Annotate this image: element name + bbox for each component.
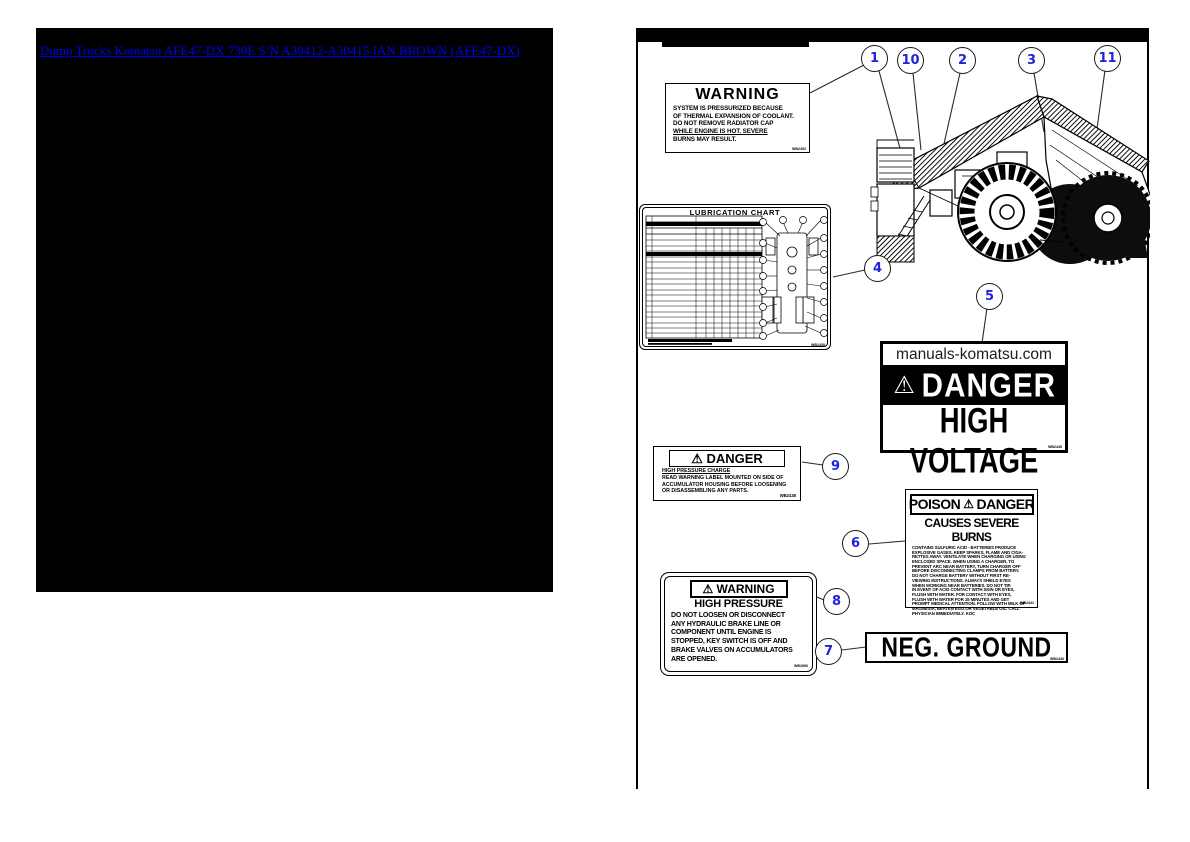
- high-pressure-body: DO NOT LOOSEN OR DISCONNECT ANY HYDRAULI…: [671, 612, 816, 664]
- label-part-code: WB2896: [794, 664, 808, 668]
- warning-radiator-label: WARNING SYSTEM IS PRESSURIZED BECAUSE OF…: [665, 83, 810, 153]
- page-canvas: { "colors": { "link_blue": "#0000EE", "c…: [0, 0, 1190, 842]
- warning-line: OF THERMAL EXPANSION OF COOLANT.: [673, 113, 809, 121]
- neg-ground-text: NEG. GROUND: [881, 631, 1051, 663]
- high-pressure-line: ANY HYDRAULIC BRAKE LINE OR: [671, 621, 816, 630]
- lubrication-chart-label: LUBRICATION CHART WB2430: [639, 204, 831, 350]
- poison-header-box: POISON ⚠ DANGER: [910, 494, 1034, 515]
- poison-subtitle: CAUSES SEVERE BURNS: [906, 516, 1037, 544]
- callout-10: 10: [897, 47, 924, 74]
- danger-word: DANGER: [977, 496, 1035, 513]
- warning-line: SYSTEM IS PRESSURIZED BECAUSE: [673, 105, 809, 113]
- lubrication-chart-title: LUBRICATION CHART: [640, 208, 830, 217]
- warning-high-pressure-label: ⚠ WARNING HIGH PRESSURE DO NOT LOOSEN OR…: [660, 572, 817, 676]
- warning-word: WARNING: [717, 582, 775, 596]
- poison-word: POISON: [909, 496, 960, 513]
- accumulator-line: READ WARNING LABEL MOUNTED ON SIDE OF: [662, 475, 800, 482]
- callout-3: 3: [1018, 47, 1045, 74]
- label-part-code: WB2430: [811, 343, 825, 347]
- callout-9: 9: [822, 453, 849, 480]
- danger-word: DANGER: [922, 367, 1056, 405]
- label-part-code: WB2441: [1020, 601, 1034, 605]
- high-pressure-subtitle: HIGH PRESSURE: [661, 598, 816, 610]
- poison-danger-label: POISON ⚠ DANGER CAUSES SEVERE BURNS CONT…: [905, 489, 1038, 608]
- callout-11: 11: [1094, 45, 1121, 72]
- warning-header-box: ⚠ WARNING: [690, 580, 788, 598]
- callout-2: 2: [949, 47, 976, 74]
- warning-triangle-icon: ⚠: [963, 496, 973, 513]
- warning-triangle-icon: ⚠: [691, 451, 703, 466]
- danger-high-voltage-label: manuals-komatsu.com ⚠ DANGER HIGH VOLTAG…: [880, 341, 1068, 453]
- warning-line: DO NOT REMOVE RADIATOR CAP: [673, 120, 809, 128]
- callout-6: 6: [842, 530, 869, 557]
- accumulator-body: READ WARNING LABEL MOUNTED ON SIDE OF AC…: [662, 475, 800, 495]
- manual-title-link[interactable]: Dump Trucks Komatsu AFE47-DX 730E S/N A3…: [40, 43, 520, 59]
- accumulator-subtitle: HIGH PRESSURE CHARGE: [662, 468, 800, 474]
- high-voltage-text: HIGH VOLTAGE: [885, 401, 1063, 481]
- lubrication-chart-inner-border: [642, 207, 828, 347]
- warning-radiator-title: WARNING: [666, 86, 809, 103]
- warning-triangle-icon: ⚠: [893, 374, 915, 398]
- callout-4: 4: [864, 255, 891, 282]
- danger-accumulator-label: ⚠ DANGER HIGH PRESSURE CHARGE READ WARNI…: [653, 446, 801, 501]
- label-part-code: WB2446: [1050, 657, 1064, 661]
- danger-word: DANGER: [706, 451, 762, 466]
- label-part-code: WB2452: [792, 147, 806, 151]
- high-pressure-line: ARE OPENED.: [671, 656, 816, 665]
- danger-header-box: ⚠ DANGER: [669, 450, 785, 467]
- high-pressure-line: COMPONENT UNTIL ENGINE IS: [671, 629, 816, 638]
- left-black-panel: Dump Trucks Komatsu AFE47-DX 730E S/N A3…: [36, 28, 553, 592]
- high-pressure-line: BRAKE VALVES ON ACCUMULATORS: [671, 647, 816, 656]
- warning-triangle-icon: ⚠: [702, 582, 713, 596]
- watermark-text: manuals-komatsu.com: [883, 345, 1065, 364]
- label-part-code: WB2438: [780, 493, 796, 498]
- neg-ground-label: NEG. GROUND WB2446: [865, 632, 1068, 663]
- callout-1: 1: [861, 45, 888, 72]
- label-part-code: WB2445: [1048, 445, 1062, 449]
- callout-7: 7: [815, 638, 842, 665]
- callout-8: 8: [823, 588, 850, 615]
- warning-radiator-body: SYSTEM IS PRESSURIZED BECAUSE OF THERMAL…: [673, 105, 809, 144]
- poison-body-text: CONTAINS SULFURIC ACID - BATTERIES PRODU…: [912, 546, 1033, 616]
- truck-illustration: [871, 96, 1150, 264]
- danger-band: ⚠ DANGER: [883, 365, 1065, 405]
- warning-line: WHILE ENGINE IS HOT. SEVERE: [673, 128, 809, 136]
- warning-line: BURNS MAY RESULT.: [673, 136, 809, 144]
- callout-5: 5: [976, 283, 1003, 310]
- high-pressure-line: DO NOT LOOSEN OR DISCONNECT: [671, 612, 816, 621]
- high-pressure-line: STOPPED, KEY SWITCH IS OFF AND: [671, 638, 816, 647]
